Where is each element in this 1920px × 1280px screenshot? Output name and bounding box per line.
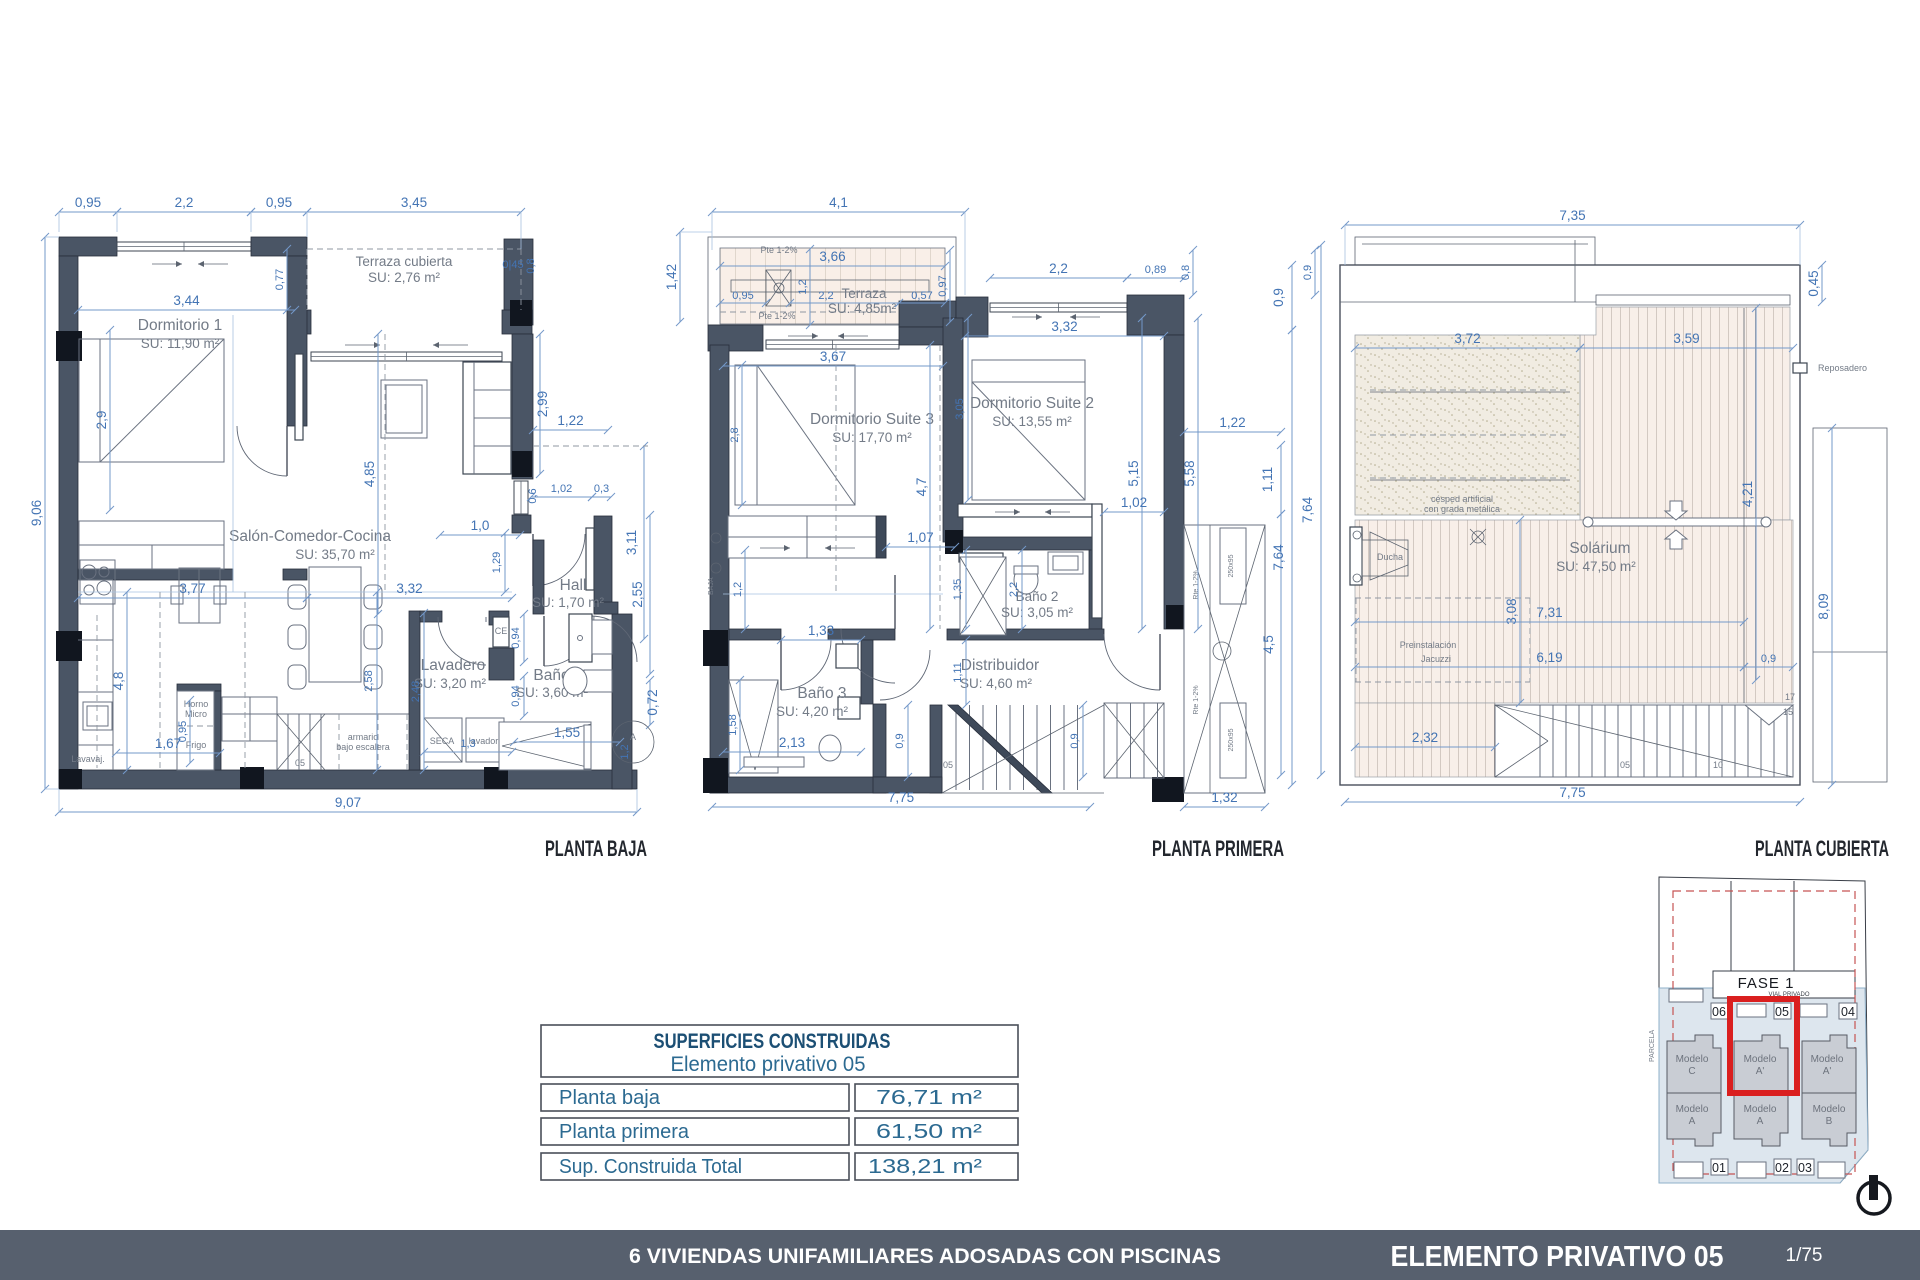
svg-text:2,9: 2,9 bbox=[94, 411, 109, 430]
svg-text:Elemento privativo 05: Elemento privativo 05 bbox=[671, 1053, 866, 1076]
svg-text:05: 05 bbox=[943, 760, 953, 770]
svg-text:1,22: 1,22 bbox=[557, 413, 583, 428]
svg-text:0,45: 0,45 bbox=[1806, 270, 1821, 296]
svg-text:Modelo: Modelo bbox=[1744, 1054, 1777, 1065]
svg-text:05: 05 bbox=[1775, 1005, 1789, 1019]
svg-text:1,11: 1,11 bbox=[1260, 467, 1275, 492]
svg-text:1,07: 1,07 bbox=[907, 530, 933, 545]
svg-text:con grada metálica: con grada metálica bbox=[1424, 504, 1500, 514]
svg-text:4,21: 4,21 bbox=[1740, 481, 1755, 507]
svg-text:A: A bbox=[1757, 1116, 1764, 1127]
svg-text:0,9: 0,9 bbox=[894, 733, 906, 748]
svg-text:0,9: 0,9 bbox=[1271, 288, 1286, 307]
svg-text:1,58: 1,58 bbox=[727, 714, 739, 735]
svg-text:SUPERFICIES CONSTRUIDAS: SUPERFICIES CONSTRUIDAS bbox=[654, 1030, 891, 1053]
svg-text:1,33: 1,33 bbox=[808, 623, 834, 638]
svg-text:76,71 m²: 76,71 m² bbox=[876, 1087, 982, 1109]
svg-text:3,59: 3,59 bbox=[1673, 331, 1699, 346]
svg-text:0,77: 0,77 bbox=[274, 269, 286, 290]
svg-text:6 VIVIENDAS UNIFAMILIARES ADOS: 6 VIVIENDAS UNIFAMILIARES ADOSADAS CON P… bbox=[629, 1245, 1221, 1268]
svg-text:FASE 1: FASE 1 bbox=[1738, 975, 1795, 992]
svg-text:SU: 4,20 m²: SU: 4,20 m² bbox=[776, 704, 849, 719]
svg-text:Modelo: Modelo bbox=[1744, 1104, 1777, 1115]
svg-text:B: B bbox=[1826, 1116, 1833, 1127]
svg-text:Horno: Horno bbox=[184, 699, 209, 709]
svg-text:césped artificial: césped artificial bbox=[1431, 494, 1493, 504]
svg-text:Dormitorio Suite 2: Dormitorio Suite 2 bbox=[970, 395, 1094, 412]
svg-text:3,44: 3,44 bbox=[173, 293, 200, 308]
svg-text:Sup. Construida Total: Sup. Construida Total bbox=[559, 1156, 742, 1178]
svg-text:1,55: 1,55 bbox=[554, 725, 580, 740]
svg-text:SU: 3,20 m²: SU: 3,20 m² bbox=[414, 676, 487, 691]
svg-text:2,99: 2,99 bbox=[535, 391, 550, 417]
svg-text:4,5: 4,5 bbox=[1261, 635, 1276, 654]
svg-text:4,85: 4,85 bbox=[362, 461, 377, 487]
svg-text:0,95: 0,95 bbox=[266, 195, 292, 210]
svg-text:SU: 13,55 m²: SU: 13,55 m² bbox=[992, 414, 1072, 429]
svg-text:Solárium: Solárium bbox=[1569, 540, 1630, 557]
svg-text:05: 05 bbox=[1620, 760, 1630, 770]
svg-text:61,50 m²: 61,50 m² bbox=[876, 1121, 982, 1143]
svg-text:9,06: 9,06 bbox=[29, 500, 44, 526]
svg-text:3,66: 3,66 bbox=[819, 249, 845, 264]
svg-text:1,32: 1,32 bbox=[1211, 790, 1237, 805]
svg-text:3,05: 3,05 bbox=[954, 398, 966, 419]
svg-text:1,2: 1,2 bbox=[732, 582, 744, 597]
svg-text:PLANTA CUBIERTA: PLANTA CUBIERTA bbox=[1755, 836, 1889, 861]
svg-text:3,77: 3,77 bbox=[179, 581, 205, 596]
svg-text:250x95: 250x95 bbox=[1228, 728, 1235, 751]
svg-text:250x95: 250x95 bbox=[1228, 554, 1235, 577]
svg-text:5,15: 5,15 bbox=[1126, 460, 1141, 486]
svg-text:Modelo: Modelo bbox=[1811, 1054, 1844, 1065]
svg-text:1,29: 1,29 bbox=[491, 552, 503, 573]
svg-text:Dormitorio Suite 3: Dormitorio Suite 3 bbox=[810, 411, 934, 428]
svg-text:0,72: 0,72 bbox=[645, 689, 660, 715]
svg-text:3,45: 3,45 bbox=[401, 195, 427, 210]
svg-text:1,0: 1,0 bbox=[471, 518, 490, 533]
svg-text:0,6: 0,6 bbox=[527, 488, 539, 503]
svg-text:7,35: 7,35 bbox=[1559, 208, 1585, 223]
svg-text:SU: 2,76 m²: SU: 2,76 m² bbox=[368, 270, 441, 285]
svg-text:CE: CE bbox=[495, 626, 508, 636]
svg-text:Planta baja: Planta baja bbox=[559, 1087, 661, 1109]
svg-text:Pte 1-2%: Pte 1-2% bbox=[760, 245, 797, 255]
svg-text:138,21 m²: 138,21 m² bbox=[868, 1156, 982, 1178]
svg-text:0,95: 0,95 bbox=[732, 290, 753, 302]
svg-text:2,2: 2,2 bbox=[818, 290, 833, 302]
svg-text:7,75: 7,75 bbox=[888, 790, 914, 805]
svg-text:A': A' bbox=[1756, 1066, 1765, 1077]
svg-text:SU: 4,60 m²: SU: 4,60 m² bbox=[960, 676, 1033, 691]
svg-text:Pte 1-2%: Pte 1-2% bbox=[758, 311, 795, 321]
svg-text:1,02: 1,02 bbox=[551, 483, 572, 495]
svg-text:Micro: Micro bbox=[185, 709, 207, 719]
svg-text:Rte 1-2%: Rte 1-2% bbox=[1193, 685, 1200, 714]
svg-text:1,22: 1,22 bbox=[1219, 415, 1245, 430]
svg-text:8,09: 8,09 bbox=[1816, 593, 1831, 619]
svg-text:Terraza: Terraza bbox=[841, 286, 887, 301]
svg-text:Lavavaj.: Lavavaj. bbox=[71, 754, 105, 764]
svg-text:10: 10 bbox=[1713, 760, 1723, 770]
svg-text:1,11: 1,11 bbox=[952, 662, 964, 683]
svg-text:2,32: 2,32 bbox=[1412, 730, 1438, 745]
svg-text:02: 02 bbox=[1775, 1161, 1789, 1175]
svg-text:SU: 35,70 m²: SU: 35,70 m² bbox=[295, 547, 375, 562]
svg-text:0,94: 0,94 bbox=[510, 685, 522, 706]
svg-text:Reposadero: Reposadero bbox=[1818, 363, 1867, 373]
svg-text:Modelo: Modelo bbox=[1813, 1104, 1846, 1115]
svg-text:17: 17 bbox=[1785, 692, 1795, 702]
svg-text:SECA: SECA bbox=[430, 736, 455, 746]
svg-text:0,89: 0,89 bbox=[1145, 264, 1166, 276]
svg-text:04: 04 bbox=[1841, 1005, 1855, 1019]
svg-text:0,3: 0,3 bbox=[594, 483, 609, 495]
svg-text:PLANTA PRIMERA: PLANTA PRIMERA bbox=[1152, 836, 1284, 861]
svg-text:PLANTA BAJA: PLANTA BAJA bbox=[545, 836, 647, 861]
svg-text:4,7: 4,7 bbox=[914, 478, 929, 497]
svg-text:Terraza cubierta: Terraza cubierta bbox=[356, 254, 453, 269]
svg-text:Distribuidor: Distribuidor bbox=[961, 657, 1039, 674]
svg-text:1,02: 1,02 bbox=[1121, 495, 1147, 510]
svg-text:01: 01 bbox=[1712, 1161, 1726, 1175]
svg-text:4,1: 4,1 bbox=[829, 195, 848, 210]
svg-text:Rte 1-2%: Rte 1-2% bbox=[1193, 570, 1200, 599]
svg-text:SU: 3,05 m²: SU: 3,05 m² bbox=[1001, 605, 1074, 620]
svg-text:Ducha: Ducha bbox=[1377, 552, 1403, 562]
svg-text:1,42: 1,42 bbox=[664, 264, 679, 290]
svg-text:1,35: 1,35 bbox=[952, 579, 964, 600]
svg-text:0,8: 0,8 bbox=[525, 258, 537, 273]
svg-text:0,8: 0,8 bbox=[1180, 265, 1192, 280]
svg-text:3,11: 3,11 bbox=[624, 530, 639, 555]
svg-text:A': A' bbox=[1823, 1066, 1832, 1077]
svg-text:3,08: 3,08 bbox=[1504, 598, 1519, 624]
svg-text:Hall: Hall bbox=[560, 577, 587, 594]
svg-text:0,9: 0,9 bbox=[1069, 733, 1081, 748]
svg-text:Jacuzzi: Jacuzzi bbox=[1421, 654, 1451, 664]
svg-text:1,2: 1,2 bbox=[619, 744, 631, 759]
svg-text:0|45: 0|45 bbox=[502, 259, 523, 271]
svg-text:bajo escalera: bajo escalera bbox=[336, 742, 390, 752]
svg-text:SU: 17,70 m²: SU: 17,70 m² bbox=[832, 430, 912, 445]
svg-text:2,2: 2,2 bbox=[1008, 582, 1020, 597]
svg-text:1/75: 1/75 bbox=[1786, 1245, 1823, 1266]
svg-text:Dormitorio 1: Dormitorio 1 bbox=[138, 317, 222, 334]
svg-text:SU: 11,90 m²: SU: 11,90 m² bbox=[141, 336, 220, 351]
svg-text:Salón-Comedor-Cocina: Salón-Comedor-Cocina bbox=[229, 528, 391, 545]
svg-text:0,94: 0,94 bbox=[510, 627, 522, 648]
svg-text:06: 06 bbox=[1712, 1005, 1726, 1019]
svg-text:C: C bbox=[1688, 1066, 1695, 1077]
svg-text:A: A bbox=[1689, 1116, 1696, 1127]
svg-text:PARCELA: PARCELA bbox=[1649, 1030, 1656, 1062]
svg-text:armario: armario bbox=[348, 732, 379, 742]
svg-text:3,32: 3,32 bbox=[1051, 319, 1077, 334]
svg-text:7,31: 7,31 bbox=[1536, 605, 1562, 620]
svg-text:7,64: 7,64 bbox=[1300, 496, 1315, 523]
svg-text:15: 15 bbox=[1783, 707, 1793, 717]
svg-text:1,2: 1,2 bbox=[797, 279, 809, 294]
svg-text:3,67: 3,67 bbox=[820, 349, 846, 364]
svg-text:2,13: 2,13 bbox=[779, 735, 805, 750]
svg-text:0,9: 0,9 bbox=[1302, 265, 1314, 280]
svg-text:Modelo: Modelo bbox=[1676, 1054, 1709, 1065]
svg-text:5,58: 5,58 bbox=[1182, 460, 1197, 486]
svg-text:ELEMENTO PRIVATIVO 05: ELEMENTO PRIVATIVO 05 bbox=[1391, 1241, 1724, 1273]
svg-text:3,72: 3,72 bbox=[1454, 331, 1480, 346]
svg-text:SU: 47,50 m²: SU: 47,50 m² bbox=[1556, 559, 1636, 574]
svg-text:4,8: 4,8 bbox=[111, 672, 126, 691]
svg-text:BAJA: BAJA bbox=[708, 577, 715, 595]
svg-text:3,32: 3,32 bbox=[396, 581, 422, 596]
svg-text:SU: 1,70 m²: SU: 1,70 m² bbox=[532, 595, 605, 610]
svg-text:2,55: 2,55 bbox=[630, 581, 645, 607]
svg-text:2,2: 2,2 bbox=[175, 195, 194, 210]
svg-text:9,07: 9,07 bbox=[335, 795, 361, 810]
svg-text:1,3: 1,3 bbox=[460, 738, 475, 750]
svg-text:Planta primera: Planta primera bbox=[559, 1121, 690, 1143]
svg-text:7,64: 7,64 bbox=[1271, 544, 1286, 571]
svg-text:0,57: 0,57 bbox=[911, 290, 932, 302]
svg-text:2,2: 2,2 bbox=[1049, 261, 1068, 276]
svg-text:2,48: 2,48 bbox=[410, 681, 422, 702]
svg-text:7,75: 7,75 bbox=[1559, 785, 1585, 800]
svg-text:A: A bbox=[630, 732, 636, 742]
svg-text:0,95: 0,95 bbox=[75, 195, 101, 210]
svg-text:0,9: 0,9 bbox=[1761, 653, 1776, 665]
svg-text:03: 03 bbox=[1798, 1161, 1812, 1175]
svg-text:05: 05 bbox=[295, 758, 305, 768]
svg-text:Lavadero: Lavadero bbox=[421, 657, 486, 674]
svg-text:0,95: 0,95 bbox=[177, 721, 189, 742]
svg-text:2,8: 2,8 bbox=[729, 427, 741, 442]
svg-text:6,19: 6,19 bbox=[1536, 650, 1562, 665]
svg-text:2,58: 2,58 bbox=[363, 670, 375, 691]
svg-text:Baño 3: Baño 3 bbox=[797, 685, 846, 702]
svg-text:Modelo: Modelo bbox=[1676, 1104, 1709, 1115]
svg-text:0,97: 0,97 bbox=[937, 275, 949, 296]
svg-text:Preinstalación: Preinstalación bbox=[1400, 640, 1457, 650]
